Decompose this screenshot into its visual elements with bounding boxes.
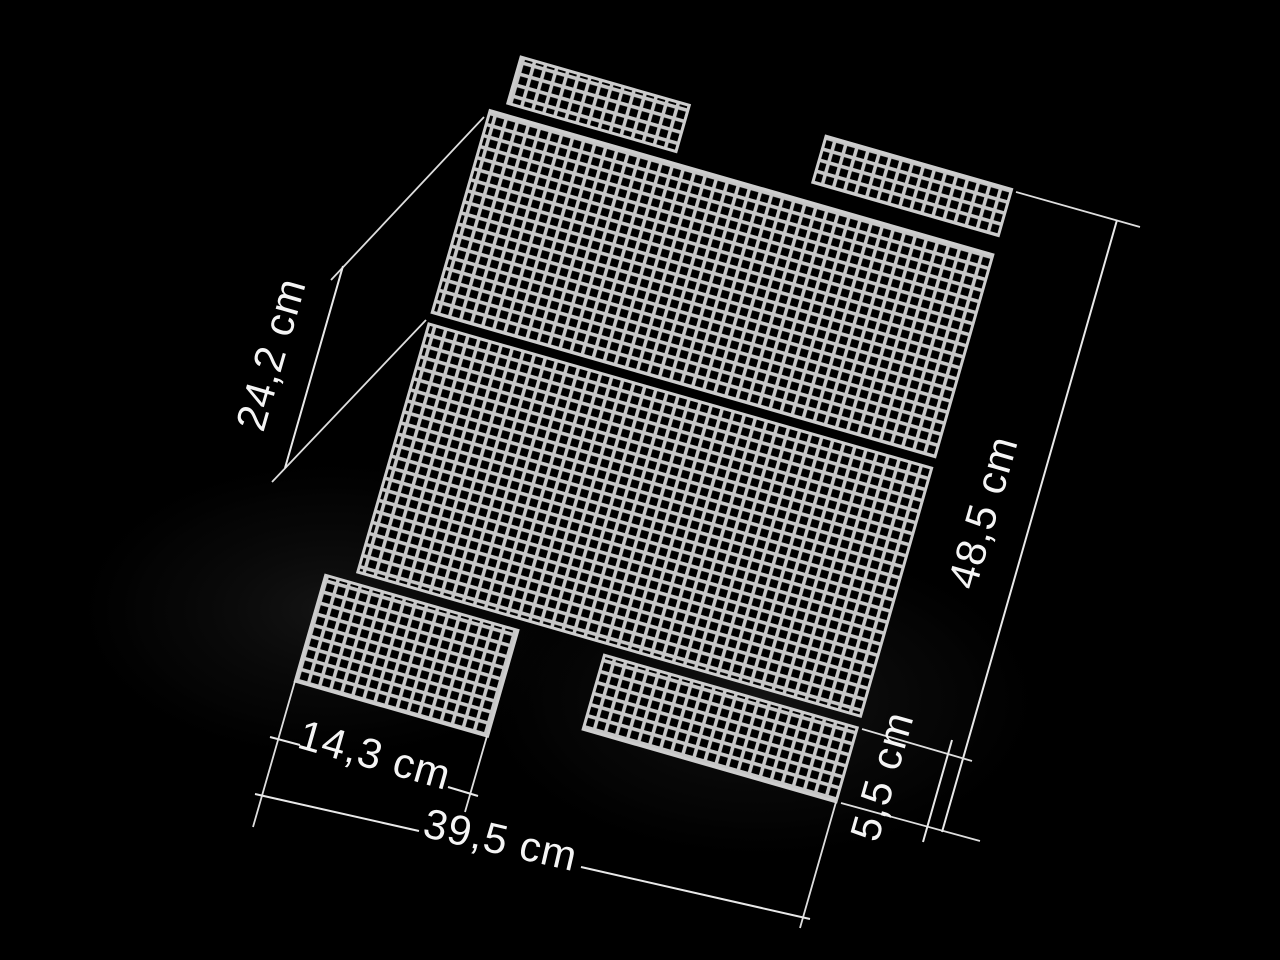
product-photo: 24,2 cm 48,5 cm 14,3 cm 39,5 cm 5,5 cm (0, 0, 1280, 960)
product-photo-canvas: 24,2 cm 48,5 cm 14,3 cm 39,5 cm 5,5 cm (0, 0, 1280, 960)
